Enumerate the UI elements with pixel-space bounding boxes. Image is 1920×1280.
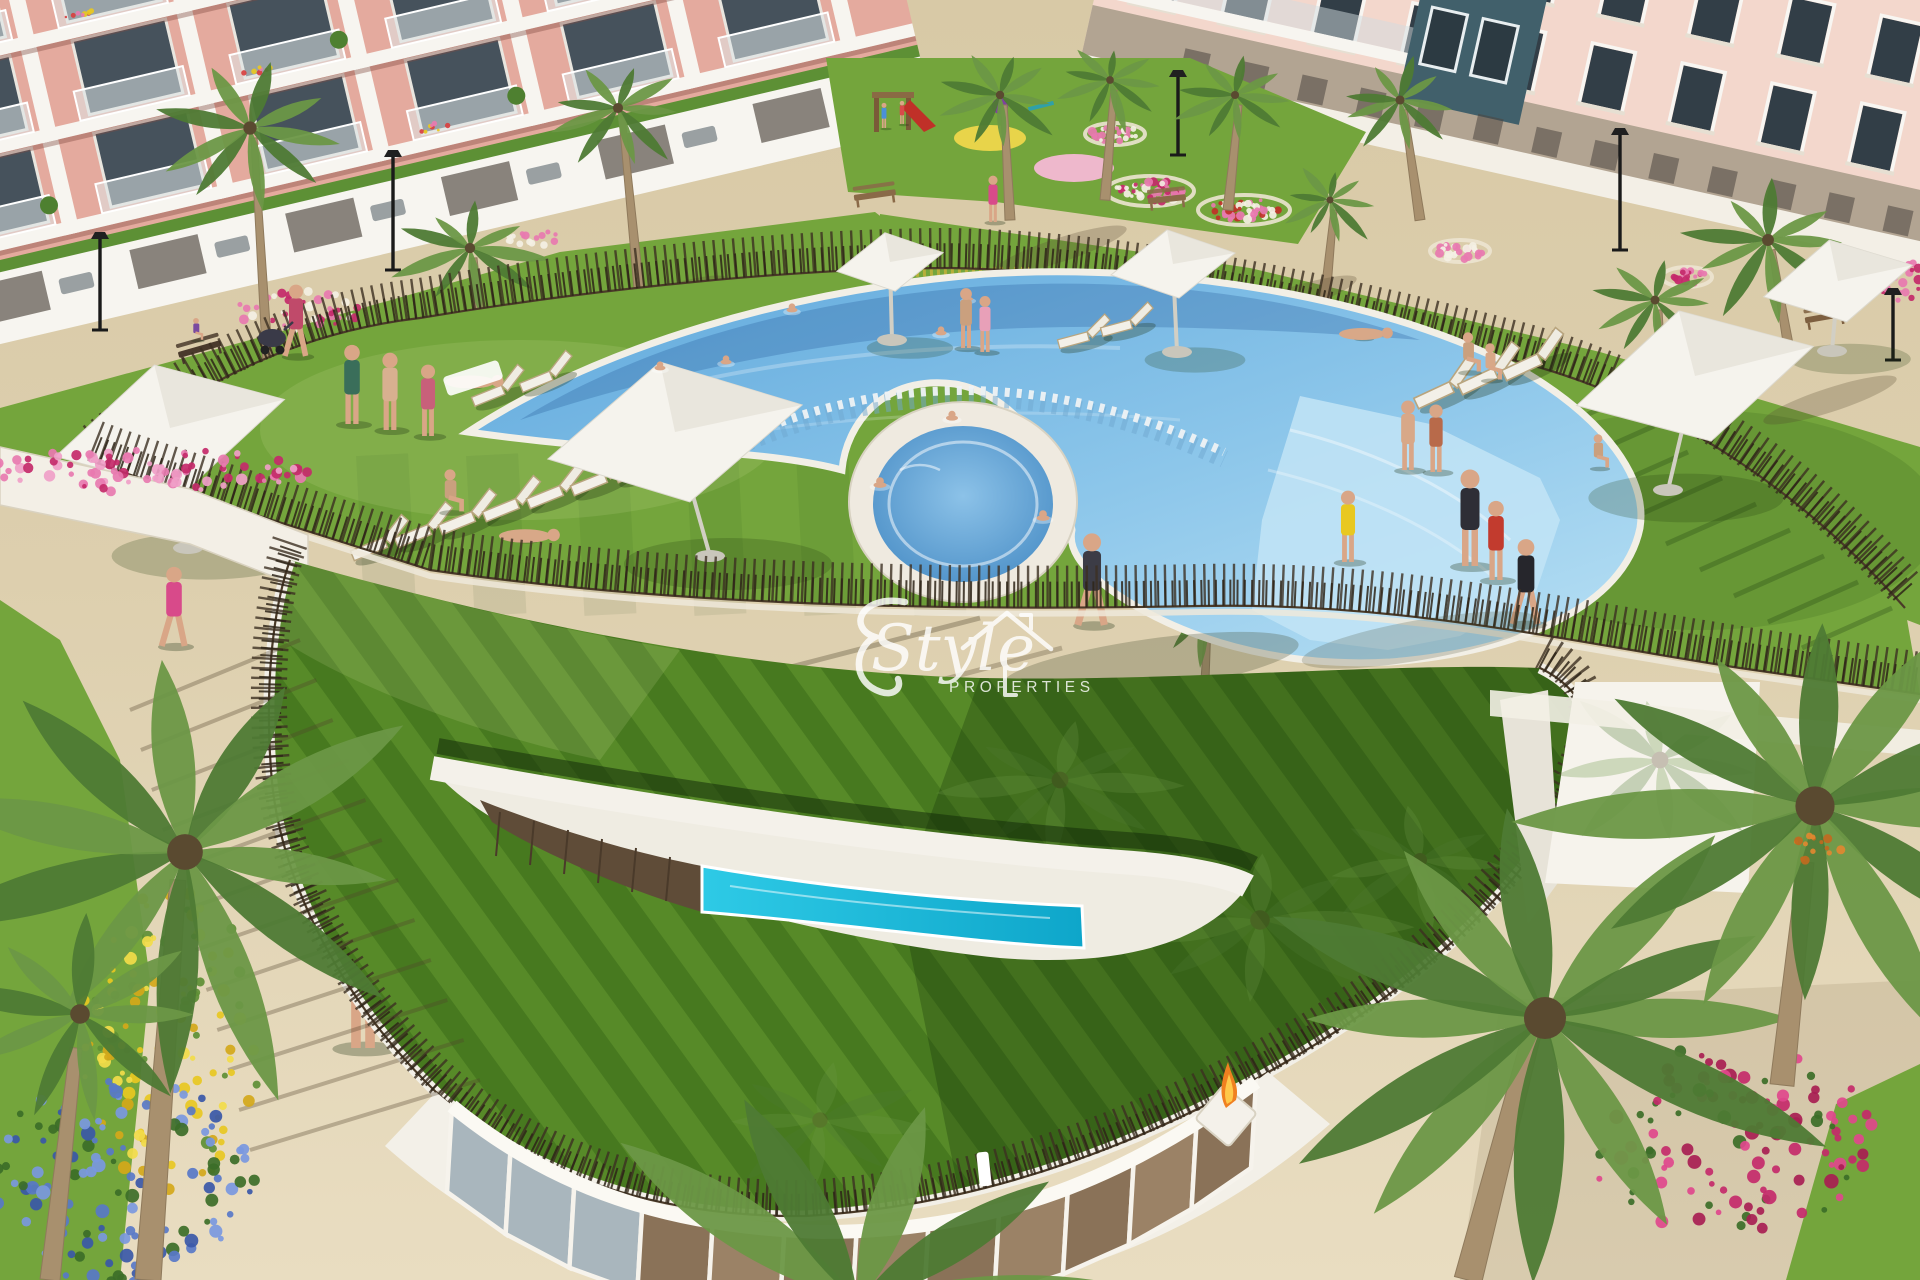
flower — [98, 1225, 104, 1231]
head — [344, 345, 360, 361]
flower — [187, 1168, 198, 1179]
flower — [1596, 1176, 1602, 1182]
flower — [87, 469, 95, 477]
torso — [1429, 417, 1442, 446]
flower — [1699, 1053, 1705, 1059]
flower — [204, 1219, 210, 1225]
flower — [1857, 1148, 1868, 1159]
flower — [290, 465, 298, 473]
flower — [1661, 1146, 1671, 1156]
leg — [986, 329, 990, 352]
flower — [104, 1053, 111, 1060]
flower — [1777, 1089, 1789, 1101]
flower — [99, 484, 108, 493]
palm-crown — [1231, 91, 1239, 99]
flower — [538, 232, 545, 239]
flower — [304, 287, 313, 296]
watermark-properties-text: PROPERTIES — [949, 679, 1095, 696]
flower — [222, 1073, 228, 1079]
flower — [1243, 215, 1252, 224]
person-shadow — [899, 124, 910, 126]
flower — [120, 1070, 125, 1075]
flower — [1130, 126, 1136, 132]
flower — [1637, 1111, 1644, 1118]
flower — [142, 936, 153, 947]
pram-wheel — [276, 346, 285, 355]
flower — [234, 450, 241, 457]
leg — [422, 406, 427, 436]
flower — [126, 480, 131, 485]
flower — [545, 229, 550, 234]
flower — [30, 1198, 42, 1210]
flower — [202, 476, 212, 486]
flower — [127, 1203, 138, 1214]
flower — [4, 1134, 13, 1143]
flower — [106, 453, 113, 460]
palm-crown — [465, 243, 475, 253]
flower — [204, 1182, 215, 1193]
flower — [224, 473, 233, 482]
flower — [120, 1145, 126, 1151]
flower — [35, 1122, 43, 1130]
flower — [265, 464, 271, 470]
leg — [1342, 532, 1347, 562]
ground-doorway — [1590, 140, 1621, 171]
flower — [240, 462, 249, 471]
flower — [1803, 841, 1808, 846]
flower — [1744, 1202, 1753, 1211]
leg — [961, 323, 965, 348]
flower — [1844, 1175, 1850, 1181]
palm-crown — [70, 1004, 90, 1024]
flower — [302, 467, 312, 477]
flower — [11, 1180, 19, 1188]
flower — [179, 1090, 187, 1098]
flower — [1646, 1146, 1654, 1154]
flower — [1675, 1110, 1681, 1116]
flower — [137, 1047, 143, 1053]
flower — [1709, 1181, 1715, 1187]
flower — [133, 447, 140, 454]
flower — [1211, 203, 1216, 208]
flower — [1456, 249, 1463, 256]
torso — [166, 582, 182, 616]
head — [1518, 539, 1535, 556]
pram-wheel — [261, 346, 270, 355]
head — [421, 365, 435, 379]
parasol-base — [1817, 345, 1847, 357]
flower — [225, 1045, 235, 1055]
flower — [1854, 1134, 1865, 1145]
flower — [218, 1139, 225, 1146]
swimmer-head — [789, 303, 796, 310]
flower — [143, 475, 151, 483]
torso — [382, 368, 397, 402]
flower — [248, 311, 257, 320]
flower — [1824, 1174, 1838, 1188]
flower — [48, 1124, 57, 1133]
ground-doorway — [1531, 127, 1562, 158]
flower — [17, 1110, 24, 1117]
flower — [208, 1157, 221, 1170]
flower — [1693, 275, 1697, 279]
flower — [1810, 835, 1815, 840]
parasol-shadow — [1145, 347, 1246, 372]
parasol-base — [1653, 484, 1683, 496]
flower — [1124, 186, 1129, 191]
leg — [994, 203, 997, 222]
flower — [1444, 243, 1448, 247]
leg — [1430, 444, 1435, 472]
flower — [529, 240, 536, 247]
flower — [1898, 278, 1907, 287]
person-shadow — [191, 340, 204, 343]
ground-doorway — [1297, 74, 1328, 105]
parasol-shadow — [1588, 474, 1783, 523]
flower — [236, 474, 248, 486]
swimmer-head — [948, 411, 955, 418]
spa-water — [873, 426, 1053, 582]
torso — [421, 378, 435, 409]
leg — [1409, 441, 1414, 470]
flower — [1680, 269, 1686, 275]
palm-crown — [1250, 910, 1270, 930]
flower — [1244, 200, 1252, 208]
flower — [534, 235, 540, 241]
flower — [209, 1110, 222, 1123]
flower — [68, 1250, 76, 1258]
head — [960, 288, 972, 300]
flower — [210, 1218, 217, 1225]
head — [900, 101, 905, 106]
palm-crown — [167, 834, 203, 870]
flower — [5, 468, 11, 474]
flower — [123, 1087, 136, 1100]
flower — [40, 1138, 46, 1144]
flower — [96, 1204, 110, 1218]
flower — [1134, 183, 1138, 187]
flower — [284, 472, 291, 479]
flower — [1794, 836, 1803, 845]
flower — [1116, 137, 1123, 144]
flower — [1857, 1160, 1869, 1172]
swimmer-head — [723, 355, 730, 362]
flower — [1747, 1170, 1760, 1183]
leg — [989, 203, 992, 222]
flower — [1797, 1208, 1807, 1218]
flower — [17, 477, 22, 482]
flower — [125, 1189, 139, 1203]
flower — [1772, 1165, 1780, 1173]
lying-body — [1339, 328, 1385, 340]
leg — [1472, 526, 1479, 566]
palm-crown — [812, 1112, 827, 1127]
flower — [1895, 297, 1900, 302]
parasol-base — [1162, 346, 1192, 358]
bench-leg — [1183, 200, 1184, 207]
flower — [1259, 198, 1263, 202]
head — [1083, 533, 1101, 551]
flower — [79, 1118, 90, 1129]
flower — [25, 456, 32, 463]
flower — [1757, 1223, 1768, 1234]
torso — [900, 105, 905, 115]
flower — [1705, 1201, 1713, 1209]
flower — [1823, 834, 1832, 843]
flower — [1462, 244, 1471, 253]
kids-spa-pool — [849, 402, 1077, 602]
flower — [172, 477, 182, 487]
flower — [1115, 126, 1119, 130]
flower — [1705, 1168, 1713, 1176]
flower — [1701, 271, 1707, 277]
flower — [22, 1217, 32, 1227]
flower — [540, 241, 548, 249]
flower — [118, 1161, 131, 1174]
flower — [147, 461, 152, 466]
flower — [202, 448, 209, 455]
flower — [187, 1106, 196, 1115]
head — [193, 318, 199, 324]
flower — [1789, 1143, 1802, 1156]
flower — [1827, 850, 1832, 855]
flower — [106, 1148, 114, 1156]
flower — [113, 471, 124, 482]
flower — [220, 482, 227, 489]
flower — [1829, 1162, 1835, 1168]
flower — [1762, 1190, 1776, 1204]
head — [979, 296, 990, 307]
flower — [1661, 1165, 1667, 1171]
flower — [227, 1056, 234, 1063]
flower — [123, 1023, 129, 1029]
flower — [12, 455, 21, 464]
leg — [900, 114, 902, 124]
play-pad-yellow — [954, 125, 1026, 151]
bench-leg — [1151, 204, 1152, 211]
flower — [44, 470, 55, 481]
flower — [169, 1251, 180, 1262]
flower — [1131, 189, 1135, 193]
parasol-base — [877, 334, 907, 346]
flower — [190, 1055, 195, 1060]
leg — [353, 391, 358, 424]
flower — [1740, 1141, 1750, 1151]
flower — [1681, 1143, 1693, 1155]
flower — [217, 1011, 224, 1018]
flower — [1746, 1214, 1757, 1225]
play-beam — [872, 92, 914, 98]
palm-crown — [1652, 752, 1669, 769]
palm-crown — [243, 121, 256, 134]
flower — [92, 1138, 98, 1144]
flower — [551, 238, 558, 245]
palm-crown — [1052, 772, 1069, 789]
flower — [115, 1107, 127, 1119]
flower — [12, 1135, 20, 1143]
leg — [391, 398, 396, 430]
swimmer-head — [938, 326, 945, 333]
palm-crown — [1395, 95, 1404, 104]
swimmer-head — [657, 361, 664, 368]
flower — [553, 232, 557, 236]
flower — [1829, 1123, 1835, 1129]
flower — [1260, 206, 1268, 214]
flower — [1819, 840, 1823, 844]
flower — [239, 314, 249, 324]
head — [1463, 332, 1473, 342]
flower — [54, 452, 62, 460]
flower — [1628, 1199, 1635, 1206]
head — [1488, 501, 1504, 517]
flower — [1908, 295, 1914, 301]
flower — [109, 1083, 118, 1092]
flower — [178, 1226, 189, 1237]
flower — [1752, 1156, 1765, 1169]
flower — [1808, 1092, 1819, 1103]
watermark-style-text: Style — [871, 612, 1035, 686]
torso — [979, 307, 990, 331]
flower — [1250, 211, 1257, 218]
flower — [520, 231, 525, 236]
flower — [95, 459, 106, 470]
flower — [36, 1185, 50, 1199]
flower — [308, 301, 312, 305]
head — [1461, 470, 1480, 489]
flower — [222, 463, 227, 468]
flower — [97, 1045, 103, 1051]
ground-doorway — [1707, 166, 1738, 197]
head — [547, 529, 559, 541]
flower — [182, 453, 188, 459]
flower — [506, 238, 511, 243]
flower — [1825, 846, 1830, 851]
flower — [120, 1249, 134, 1263]
flower — [114, 459, 120, 465]
flower — [243, 1095, 255, 1107]
flower — [95, 1118, 102, 1125]
flower — [1688, 1155, 1702, 1169]
leg — [967, 323, 971, 348]
torso — [988, 185, 997, 205]
torso — [344, 360, 360, 394]
flower — [1238, 207, 1242, 211]
play-post — [874, 96, 879, 132]
palm-crown — [1327, 197, 1334, 204]
flower — [237, 302, 242, 307]
flower — [1810, 849, 1815, 854]
flower — [516, 240, 523, 247]
flower — [85, 450, 94, 459]
flower — [253, 1081, 261, 1089]
flower — [1144, 178, 1153, 187]
flower — [276, 467, 283, 474]
head — [988, 176, 997, 185]
torso — [1488, 516, 1504, 550]
person-shadow — [880, 128, 891, 131]
flower — [1212, 208, 1219, 215]
flower — [1848, 1155, 1856, 1163]
flower — [219, 1126, 228, 1135]
flower — [219, 1102, 227, 1110]
flower — [1729, 1195, 1742, 1208]
lying-body — [499, 529, 551, 543]
flower — [198, 487, 203, 492]
flower — [206, 1137, 215, 1146]
flower — [227, 1211, 234, 1218]
head — [1341, 491, 1355, 505]
flower — [1836, 1194, 1844, 1202]
flower — [1218, 201, 1222, 205]
leg — [980, 329, 984, 352]
flower — [0, 474, 8, 482]
flower — [1865, 1119, 1877, 1131]
flower — [1159, 181, 1165, 187]
flower — [152, 475, 158, 481]
flower — [1648, 1118, 1654, 1124]
flower — [1838, 1164, 1844, 1170]
flower — [1130, 134, 1134, 138]
leg — [902, 114, 904, 124]
flower — [1848, 1085, 1855, 1092]
flower — [82, 484, 86, 488]
flower — [32, 1166, 44, 1178]
flower — [193, 1032, 200, 1039]
flower — [262, 478, 267, 483]
leg — [1402, 441, 1407, 470]
flower — [127, 1172, 136, 1181]
flower — [274, 456, 283, 465]
flower — [276, 479, 281, 484]
flower — [1737, 1221, 1746, 1230]
palm-crown — [613, 103, 623, 113]
bench-leg — [893, 195, 894, 202]
flower — [1693, 1213, 1706, 1226]
torso — [960, 300, 972, 326]
flower — [69, 1169, 80, 1180]
flower — [122, 452, 133, 463]
flower — [1848, 1115, 1857, 1124]
flower — [111, 1159, 117, 1165]
flower — [75, 1251, 85, 1261]
flower — [115, 1131, 123, 1139]
flower — [19, 1181, 28, 1190]
torso — [1401, 414, 1415, 444]
head — [444, 469, 455, 480]
flower — [1123, 135, 1129, 141]
flower — [1837, 1097, 1848, 1108]
head — [289, 285, 303, 299]
flower — [1117, 185, 1122, 190]
pram-body — [258, 329, 286, 347]
flower — [192, 1076, 202, 1086]
torso — [882, 108, 887, 119]
flower — [238, 1144, 249, 1155]
swimmer-head — [876, 477, 884, 485]
leg — [1497, 547, 1502, 580]
flower — [1716, 1209, 1722, 1215]
flower — [1124, 190, 1131, 197]
flower — [1762, 1078, 1769, 1085]
head — [1382, 327, 1393, 338]
flower — [271, 293, 277, 299]
property-render-image: Style PROPERTIES — [0, 0, 1920, 1280]
flower — [99, 1124, 105, 1130]
head — [882, 103, 887, 108]
flower — [1822, 1149, 1829, 1156]
flower — [210, 1069, 217, 1076]
flower — [1836, 845, 1845, 854]
